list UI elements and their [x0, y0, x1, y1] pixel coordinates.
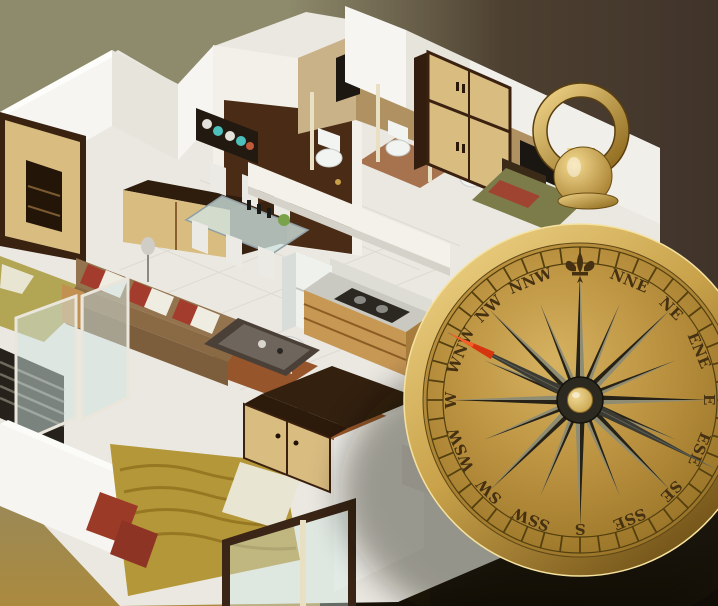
- partition-frame-bar: [222, 540, 230, 606]
- bottle: [267, 208, 271, 218]
- toilet-bowl: [316, 149, 342, 167]
- tall-wardrobe-side: [414, 52, 428, 170]
- wardrobe-handle: [456, 82, 459, 91]
- crown-base: [558, 193, 618, 209]
- wardrobe-handle: [276, 434, 281, 439]
- fridge-side: [282, 252, 296, 332]
- wardrobe-handle: [462, 144, 465, 153]
- bottle: [247, 200, 251, 210]
- dining-chair: [210, 162, 226, 196]
- dining-chair: [192, 220, 208, 254]
- scene-canvas: NNENEENEEESESESSESSSWSWWSWWWNWNWNNW: [0, 0, 718, 606]
- table-plant: [278, 214, 290, 226]
- wardrobe-handle: [462, 84, 465, 93]
- art-flower: [225, 131, 235, 141]
- compass-direction-label: W: [442, 391, 460, 410]
- art-flower: [213, 126, 223, 136]
- lamp-shade: [141, 237, 155, 255]
- balcony-glass-door: [82, 278, 128, 420]
- dining-chair: [226, 234, 242, 268]
- wardrobe-handle: [456, 142, 459, 151]
- partition-frame-cream: [300, 520, 306, 606]
- compass-direction-label: S: [574, 520, 585, 538]
- compass-direction-label: E: [700, 394, 718, 406]
- wardrobe-handle: [294, 441, 299, 446]
- hub-highlight: [572, 392, 580, 398]
- table-item: [277, 348, 283, 354]
- table-item: [258, 340, 266, 348]
- stove-burner: [354, 296, 366, 304]
- fleur-band: [572, 272, 588, 276]
- hub-button: [568, 388, 593, 413]
- sphere-highlight: [567, 157, 581, 177]
- floorplan-compass-image: NNENEENEEESESESSESSSWSWWSWWWNWNWNNW: [0, 0, 718, 606]
- wardrobe-left-shelves: [26, 160, 62, 232]
- art-flower: [202, 119, 212, 129]
- dining-chair: [258, 246, 274, 280]
- door-handle: [335, 179, 341, 185]
- balcony-glass-door: [16, 296, 76, 444]
- bottle: [257, 204, 261, 214]
- toilet-bowl: [386, 140, 410, 156]
- stove-burner: [376, 305, 388, 313]
- art-flower: [246, 142, 254, 150]
- art-flower: [236, 136, 246, 146]
